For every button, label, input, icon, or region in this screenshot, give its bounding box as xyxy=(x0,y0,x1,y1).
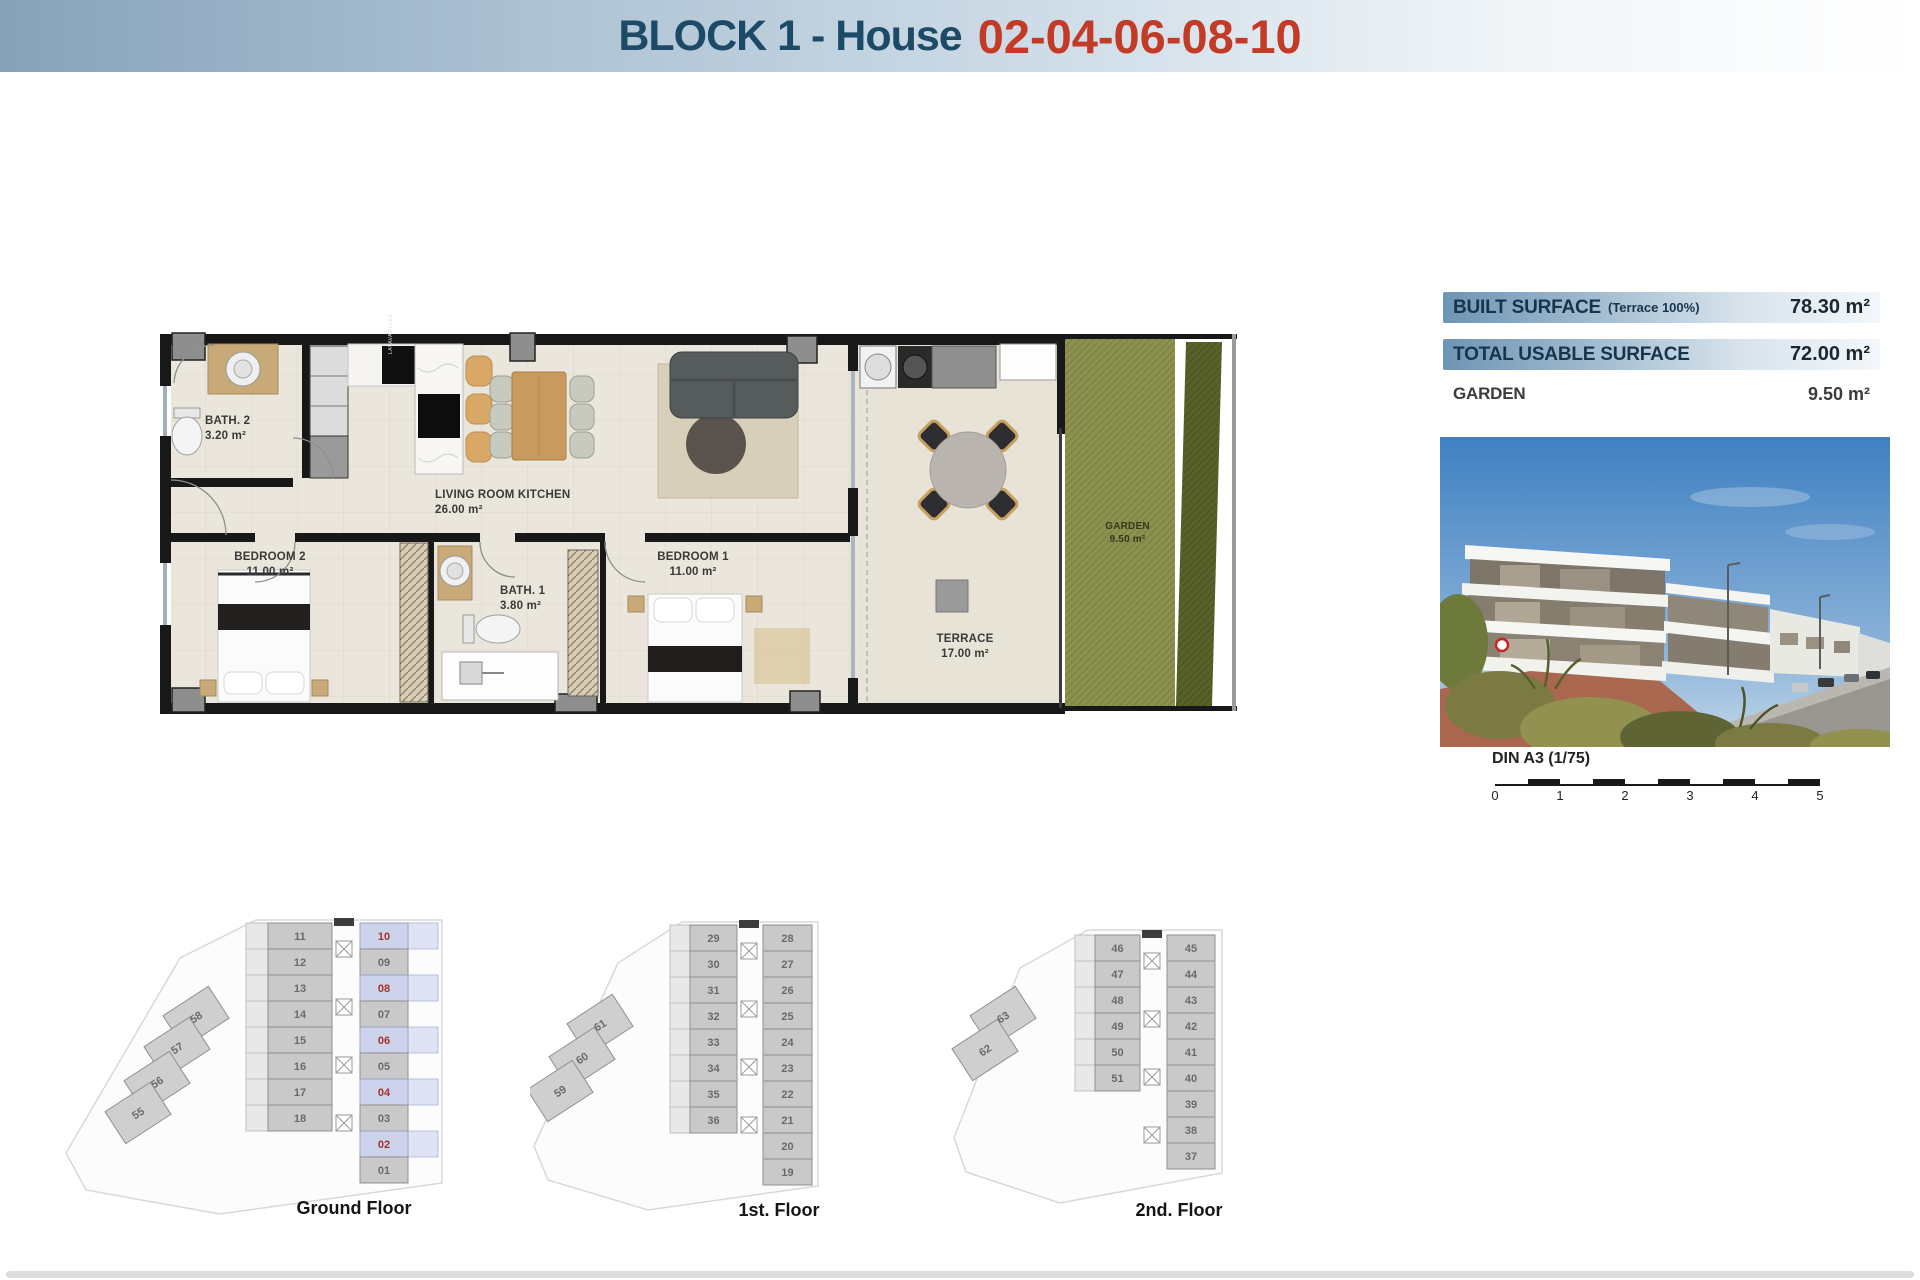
page-title-block: BLOCK 1 - House xyxy=(618,12,961,61)
svg-text:19: 19 xyxy=(781,1167,793,1179)
svg-text:12: 12 xyxy=(294,957,306,969)
mini-floor-plan-second: 46474849505145444342414039383763622nd. F… xyxy=(950,918,1290,1228)
window-2 xyxy=(163,563,167,625)
svg-text:49: 49 xyxy=(1111,1021,1123,1033)
svg-text:09: 09 xyxy=(378,957,390,969)
terrace-planter xyxy=(1000,344,1056,380)
svg-text:34: 34 xyxy=(707,1063,720,1075)
svg-text:16: 16 xyxy=(294,1061,306,1073)
wall-corridor-c xyxy=(515,533,605,542)
built-surface-note: (Terrace 100%) xyxy=(1608,300,1700,315)
svg-text:36: 36 xyxy=(707,1115,719,1127)
usable-surface-row: TOTAL USABLE SURFACE 72.00 m² xyxy=(1443,339,1880,370)
floor-label: 2nd. Floor xyxy=(1136,1200,1223,1220)
page-title-houses: 02-04-06-08-10 xyxy=(978,9,1302,64)
room-label-bath1: BATH. 13.80 m² xyxy=(500,584,545,614)
svg-text:03: 03 xyxy=(378,1113,390,1125)
svg-text:39: 39 xyxy=(1185,1099,1197,1111)
svg-text:50: 50 xyxy=(1111,1047,1123,1059)
svg-text:11: 11 xyxy=(294,931,306,943)
svg-text:42: 42 xyxy=(1185,1021,1197,1033)
room-label-garden: GARDEN9.50 m² xyxy=(1080,520,1175,546)
garden-surface-row: GARDEN 9.50 m² xyxy=(1443,381,1880,407)
glass-post-1 xyxy=(848,345,858,371)
terrace-drain xyxy=(936,580,968,612)
svg-text:18: 18 xyxy=(294,1113,306,1125)
terrace-table-set xyxy=(917,419,1019,521)
wall-corridor-b xyxy=(295,533,480,542)
svg-text:37: 37 xyxy=(1185,1151,1197,1163)
svg-text:29: 29 xyxy=(707,933,719,945)
wardrobe-hatched-a xyxy=(400,543,428,702)
room-label-living: LIVING ROOM KITCHEN26.00 m² xyxy=(435,488,570,518)
wall-bottom xyxy=(160,703,1065,714)
main-floor-plan: BATH. 23.20 m² LIVING ROOM KITCHEN26.00 … xyxy=(160,328,1245,720)
bath2-toilet xyxy=(172,417,202,455)
svg-text:10: 10 xyxy=(378,931,390,943)
window-1 xyxy=(163,386,167,436)
svg-text:05: 05 xyxy=(378,1061,390,1073)
svg-text:08: 08 xyxy=(378,983,390,995)
svg-text:38: 38 xyxy=(1185,1125,1197,1137)
wall-terrace-right xyxy=(1057,334,1065,434)
footer-strip xyxy=(6,1271,1914,1278)
svg-text:48: 48 xyxy=(1111,995,1123,1007)
bar-stools xyxy=(466,356,492,462)
wall-bath1-left xyxy=(428,542,434,703)
scale-ticks: 0 1 2 3 4 5 xyxy=(1495,788,1820,804)
svg-text:24: 24 xyxy=(781,1037,794,1049)
dining-set xyxy=(490,372,594,460)
svg-text:35: 35 xyxy=(707,1089,719,1101)
svg-text:47: 47 xyxy=(1111,969,1123,981)
bath1-basin-inner xyxy=(447,563,463,579)
bath2-basin-inner xyxy=(234,360,252,378)
svg-text:25: 25 xyxy=(781,1011,793,1023)
svg-text:30: 30 xyxy=(707,959,719,971)
svg-text:04: 04 xyxy=(378,1087,391,1099)
svg-text:14: 14 xyxy=(294,1009,307,1021)
room-label-terrace: TERRACE17.00 m² xyxy=(910,632,1020,662)
wall-bottom-garden xyxy=(1065,706,1237,711)
building-photo xyxy=(1440,437,1890,747)
svg-text:45: 45 xyxy=(1185,943,1197,955)
glass-door-frame xyxy=(848,488,858,536)
svg-text:13: 13 xyxy=(294,983,306,995)
bedroom2-bed xyxy=(200,570,328,702)
svg-text:32: 32 xyxy=(707,1011,719,1023)
round-rug xyxy=(686,414,746,474)
garden-surface-value: 9.50 m² xyxy=(1808,384,1870,405)
cooktop xyxy=(418,394,460,438)
wall-corridor-d xyxy=(645,533,850,542)
svg-text:40: 40 xyxy=(1185,1073,1197,1085)
svg-text:28: 28 xyxy=(781,933,793,945)
scale-bar xyxy=(1495,779,1820,786)
kitchen-tall-cabinet xyxy=(310,346,348,478)
laundry-units xyxy=(860,346,996,388)
mini-floor-plan-ground: 1112131415161718100908070605040302015857… xyxy=(60,918,540,1228)
garden-surface-label: GARDEN xyxy=(1453,384,1525,404)
wall-top xyxy=(160,334,1065,345)
wall-top-garden xyxy=(1065,334,1237,339)
bath1-shower xyxy=(442,652,558,700)
svg-text:01: 01 xyxy=(378,1165,390,1177)
svg-text:07: 07 xyxy=(378,1009,390,1021)
floor-label: Ground Floor xyxy=(297,1198,412,1218)
svg-text:51: 51 xyxy=(1111,1073,1123,1085)
room-label-bedroom1: BEDROOM 111.00 m² xyxy=(638,550,748,580)
mini-floor-plan-first: 2930313233343536282726252423222120196160… xyxy=(530,918,870,1228)
svg-text:33: 33 xyxy=(707,1037,719,1049)
garden-hedge xyxy=(1176,342,1222,706)
svg-text:21: 21 xyxy=(781,1115,793,1127)
room-label-bath2: BATH. 23.20 m² xyxy=(205,414,250,444)
svg-text:23: 23 xyxy=(781,1063,793,1075)
svg-text:02: 02 xyxy=(378,1139,390,1151)
scale-label: DIN A3 (1/75) xyxy=(1492,750,1590,768)
svg-text:43: 43 xyxy=(1185,995,1197,1007)
header-bar: BLOCK 1 - House 02-04-06-08-10 xyxy=(0,0,1920,72)
wall-bath2-right xyxy=(302,345,310,478)
svg-text:15: 15 xyxy=(294,1035,306,1047)
svg-text:06: 06 xyxy=(378,1035,390,1047)
wall-bath1-right xyxy=(600,542,606,703)
wall-corridor-a xyxy=(171,533,255,542)
svg-text:20: 20 xyxy=(781,1141,793,1153)
floor-label: 1st. Floor xyxy=(738,1200,819,1220)
bedroom1-rug xyxy=(754,628,810,684)
built-surface-label: BUILT SURFACE xyxy=(1453,297,1601,319)
svg-text:26: 26 xyxy=(781,985,793,997)
svg-text:31: 31 xyxy=(707,985,719,997)
usable-surface-label: TOTAL USABLE SURFACE xyxy=(1453,344,1690,366)
svg-text:17: 17 xyxy=(294,1087,306,1099)
svg-text:22: 22 xyxy=(781,1089,793,1101)
svg-text:46: 46 xyxy=(1111,943,1123,955)
room-label-bedroom2: BEDROOM 211.00 m² xyxy=(215,550,325,580)
dishwasher-label: LAVAVAJILLAS xyxy=(388,314,394,354)
svg-text:41: 41 xyxy=(1185,1047,1197,1059)
bath1-toilet xyxy=(463,615,520,643)
flyer-page: BLOCK 1 - House 02-04-06-08-10 xyxy=(0,0,1920,1280)
wardrobe-hatched-b xyxy=(568,550,598,696)
usable-surface-value: 72.00 m² xyxy=(1790,343,1870,366)
built-surface-row: BUILT SURFACE (Terrace 100%) 78.30 m² xyxy=(1443,292,1880,323)
terrace-garden-edge xyxy=(1059,428,1062,708)
built-surface-value: 78.30 m² xyxy=(1790,296,1870,319)
svg-text:44: 44 xyxy=(1185,969,1198,981)
glass-post-2 xyxy=(848,678,858,703)
sofa xyxy=(670,352,798,418)
svg-text:27: 27 xyxy=(781,959,793,971)
garden-right-edge xyxy=(1232,334,1236,711)
